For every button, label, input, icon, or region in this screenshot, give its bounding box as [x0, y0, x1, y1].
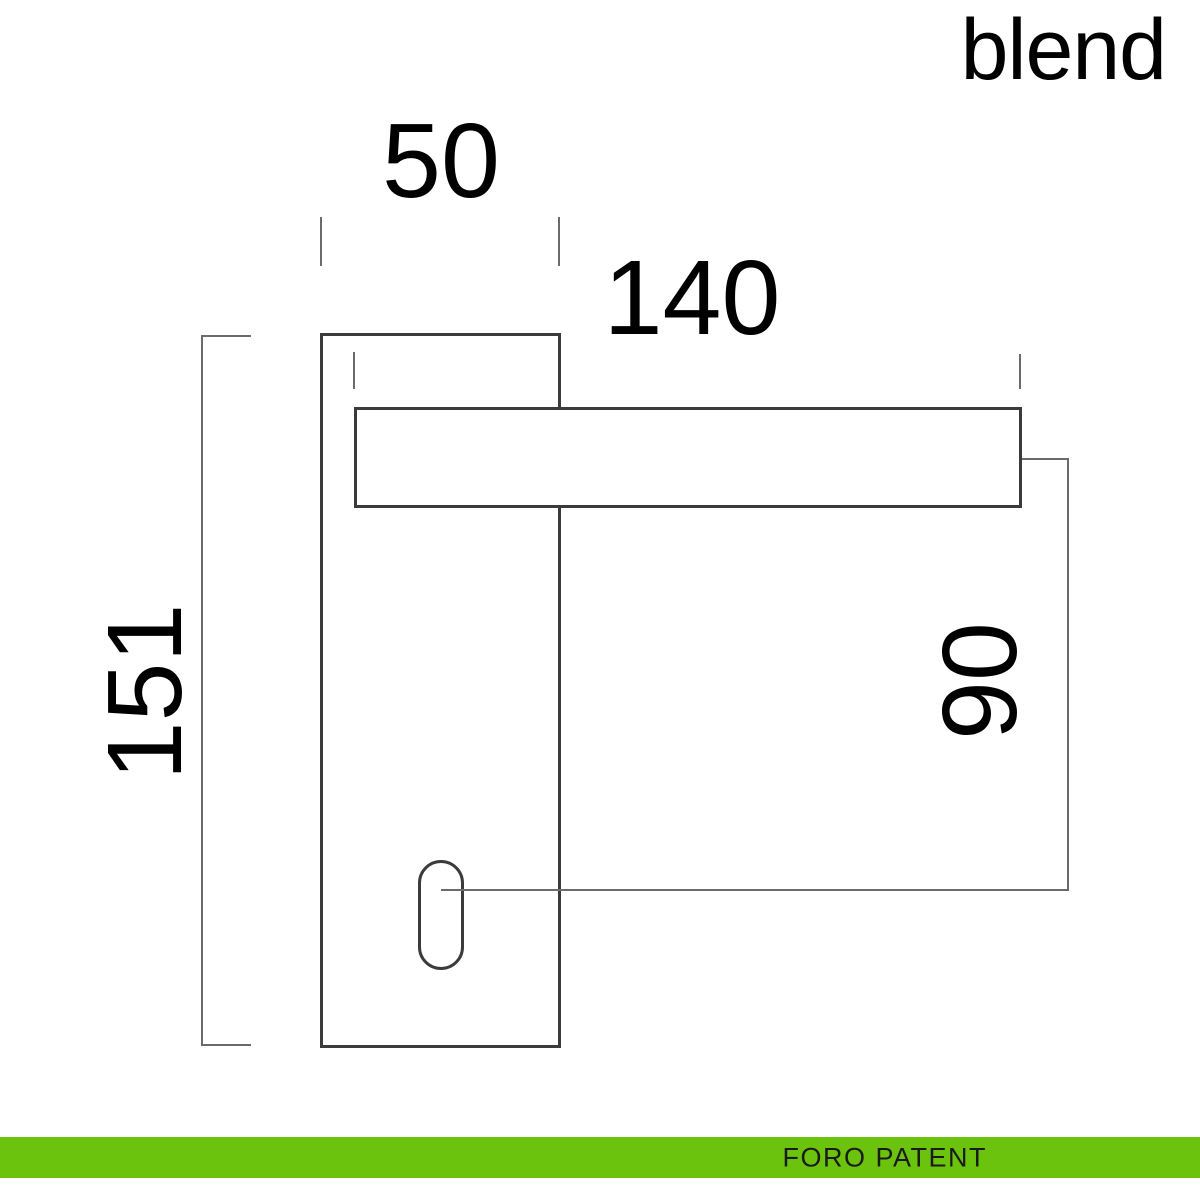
dim-151-top-tick — [201, 335, 251, 337]
dim-90-line — [1067, 458, 1069, 891]
footer-patent-label: FORO PATENT — [783, 1142, 988, 1173]
dim-label-handle-length: 140 — [604, 245, 781, 351]
lever-handle-outline — [354, 407, 1022, 508]
dim-50-left-tick — [320, 217, 322, 266]
dim-90-keyhole-leader — [441, 889, 1069, 891]
dim-label-plate-width: 50 — [382, 108, 500, 214]
dim-140-left-tick — [353, 352, 355, 389]
footer-bar: FORO PATENT — [0, 1137, 1200, 1178]
dim-label-plate-height: 151 — [92, 604, 198, 781]
brand-logo: blend — [961, 7, 1166, 93]
dim-151-bottom-tick — [201, 1044, 251, 1046]
dim-140-right-tick — [1019, 354, 1021, 389]
keyhole-outline — [418, 860, 464, 970]
dim-label-keyhole-distance: 90 — [927, 622, 1033, 740]
dim-90-top-leader — [1022, 458, 1069, 460]
dim-50-right-tick — [558, 217, 560, 266]
technical-drawing-page: blend 50 140 151 90 FORO PATENT — [0, 0, 1200, 1200]
